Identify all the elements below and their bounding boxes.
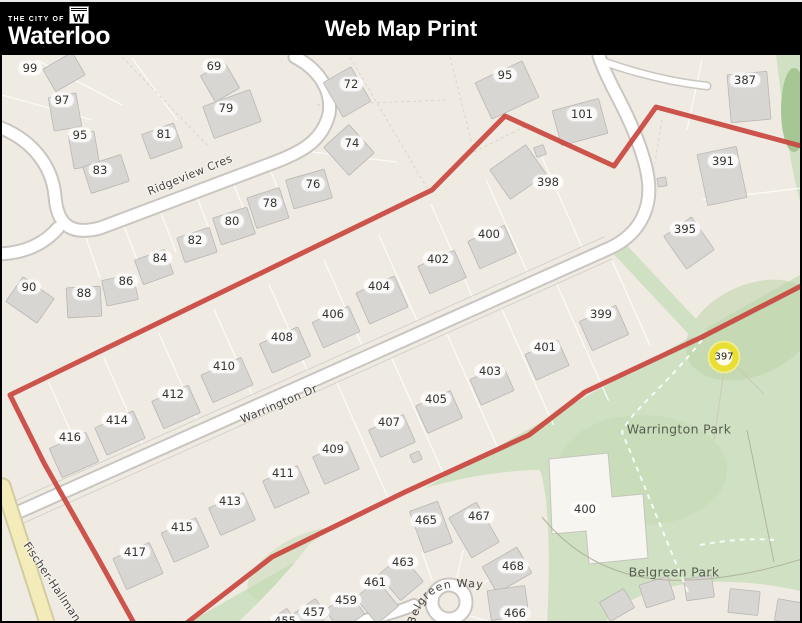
house-number-label: 95	[494, 68, 517, 82]
map-canvas: Belgreen Way 999795836979817274767880828…	[0, 55, 802, 623]
highlighted-parcel-marker: 397	[710, 343, 739, 372]
house-number-label: 417	[120, 545, 150, 559]
house-number-label: 79	[215, 101, 238, 115]
house-number-label: 463	[388, 555, 418, 569]
house-number-label: 401	[530, 340, 560, 354]
house-number-label: 80	[221, 214, 244, 228]
house-number-label: 82	[184, 233, 207, 247]
house-number-label: 467	[464, 509, 494, 523]
web-map-print-page: THE CITY OF W Waterloo Web Map Print	[0, 0, 802, 623]
house-number-label: 461	[360, 575, 390, 589]
house-number-label: 414	[102, 413, 132, 427]
street-label-warrington-dr: Warrington Dr	[238, 382, 319, 426]
street-label-ridgeview-cres: Ridgeview Cres	[146, 152, 235, 198]
house-number-label: 101	[567, 107, 597, 121]
house-number-label: 402	[423, 252, 453, 266]
house-number-label: 398	[533, 175, 563, 189]
house-number-label: 88	[73, 286, 96, 300]
belgreen-park-label: Belgreen Park	[629, 565, 720, 580]
house-number-label: 400	[570, 502, 600, 516]
house-number-label: 410	[209, 359, 239, 373]
house-number-label: 387	[730, 73, 760, 87]
house-number-label: 76	[302, 177, 325, 191]
street-label-fischer-hallman: Fischer-Hallman	[20, 540, 83, 623]
header-bar: THE CITY OF W Waterloo Web Map Print	[0, 0, 802, 55]
house-number-label: 409	[318, 442, 348, 456]
page-title: Web Map Print	[0, 16, 802, 42]
warrington-park-label: Warrington Park	[627, 422, 732, 437]
house-number-label: 404	[364, 279, 394, 293]
house-number-label: 95	[69, 128, 92, 142]
house-number-label: 69	[203, 59, 226, 73]
house-number-label: 406	[318, 307, 348, 321]
house-number-label: 90	[18, 280, 41, 294]
house-number-label: 83	[89, 163, 112, 177]
house-number-label: 412	[158, 387, 188, 401]
house-number-label: 400	[474, 227, 504, 241]
house-number-label: 457	[299, 605, 329, 619]
house-number-label: 407	[374, 415, 404, 429]
house-number-label: 84	[149, 251, 172, 265]
house-number-label: 416	[55, 430, 85, 444]
house-number-label: 408	[267, 330, 297, 344]
house-number-label: 97	[51, 93, 74, 107]
house-number-label: 468	[498, 559, 528, 573]
house-number-label: 78	[259, 196, 282, 210]
house-number-label: 72	[340, 77, 363, 91]
house-number-label: 413	[215, 494, 245, 508]
house-number-label: 411	[268, 466, 298, 480]
map-labels-layer: 9997958369798172747678808284868890951013…	[2, 55, 800, 621]
house-number-label: 466	[500, 606, 530, 620]
house-number-label: 403	[475, 364, 505, 378]
house-number-label: 81	[153, 127, 176, 141]
house-number-label: 399	[586, 307, 616, 321]
house-number-label: 99	[19, 61, 42, 75]
house-number-label: 391	[708, 154, 738, 168]
house-number-label: 395	[670, 222, 700, 236]
house-number-label: 415	[167, 520, 197, 534]
house-number-label: 86	[115, 274, 138, 288]
house-number-label: 74	[341, 136, 364, 150]
house-number-label: 459	[331, 593, 361, 607]
house-number-label: 465	[411, 513, 441, 527]
house-number-label: 455	[270, 614, 300, 623]
house-number-label: 405	[421, 392, 451, 406]
